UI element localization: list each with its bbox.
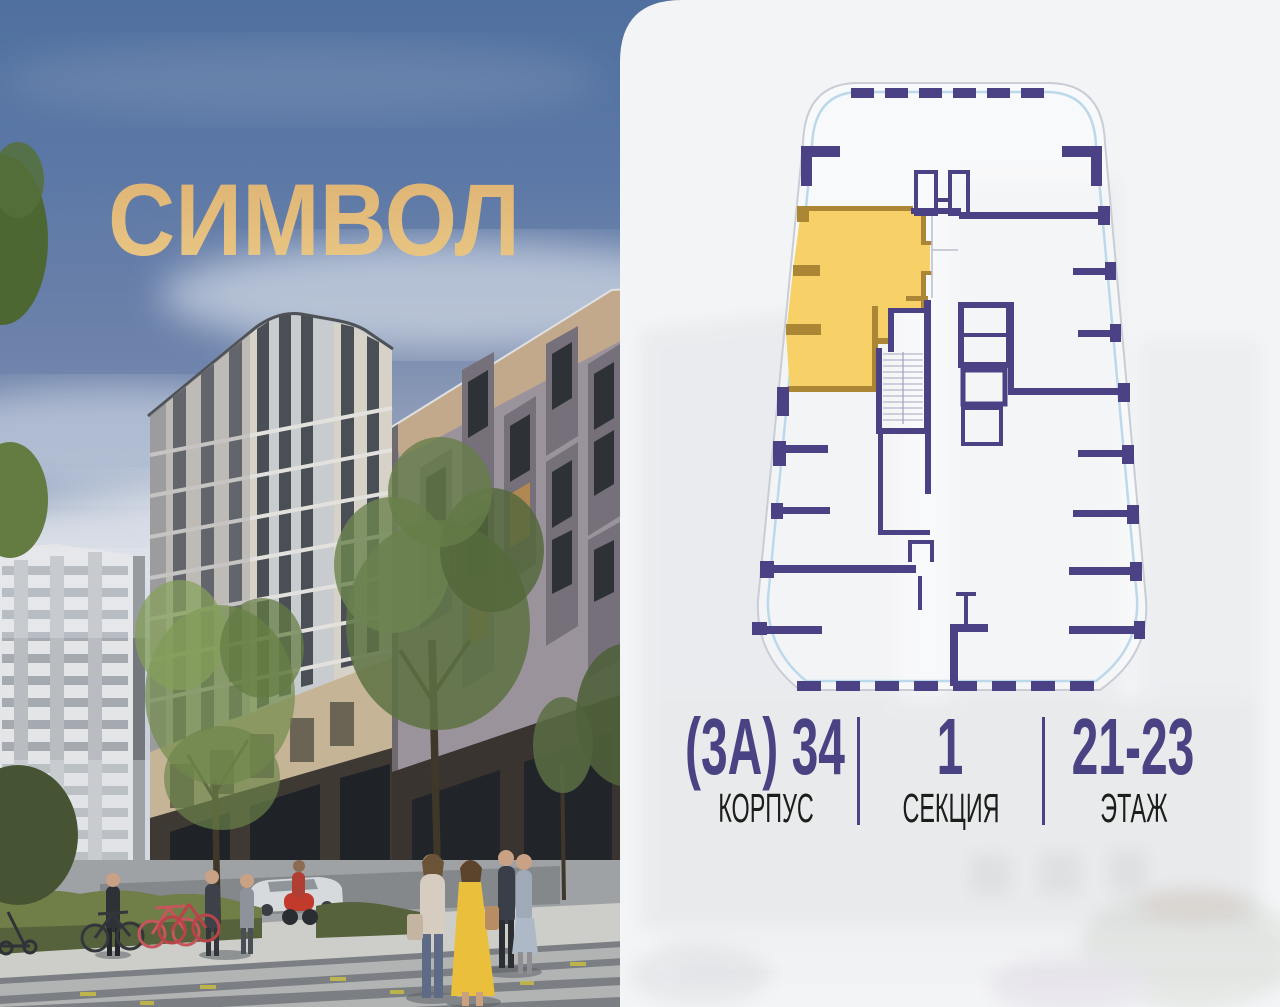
svg-text:(3А) 34: (3А) 34 [685, 701, 845, 791]
svg-text:СИМВОЛ: СИМВОЛ [108, 163, 520, 277]
svg-text:КОРПУС: КОРПУС [718, 786, 814, 831]
svg-text:СЕКЦИЯ: СЕКЦИЯ [902, 786, 999, 831]
svg-text:21-23: 21-23 [1072, 701, 1195, 791]
svg-text:ЭТАЖ: ЭТАЖ [1100, 786, 1168, 831]
svg-text:1: 1 [937, 701, 964, 791]
